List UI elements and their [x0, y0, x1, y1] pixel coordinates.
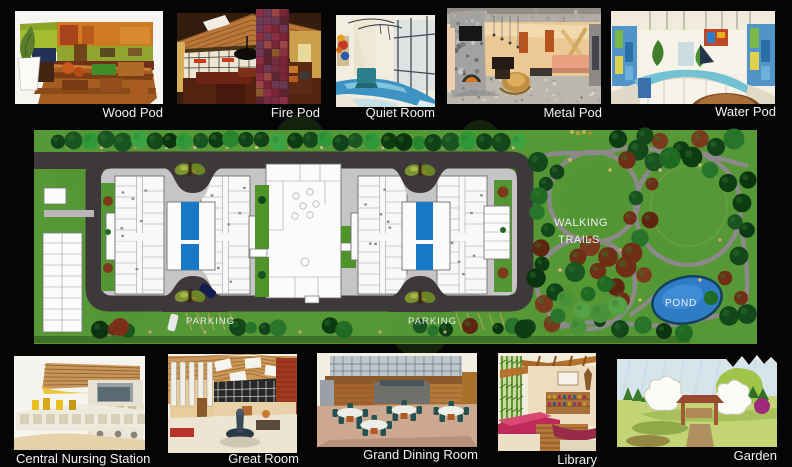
svg-text:TRAILS: TRAILS: [558, 234, 600, 246]
svg-text:Garden: Garden: [734, 448, 777, 463]
svg-text:Grand Dining Room: Grand Dining Room: [363, 447, 478, 462]
svg-text:Quiet Room: Quiet Room: [366, 105, 435, 120]
svg-text:PARKING: PARKING: [408, 316, 457, 327]
svg-text:Metal Pod: Metal Pod: [543, 105, 602, 120]
svg-text:Library: Library: [557, 452, 597, 467]
svg-text:Wood Pod: Wood Pod: [103, 105, 163, 120]
svg-text:PARKING: PARKING: [186, 316, 235, 327]
svg-text:WALKING: WALKING: [554, 217, 608, 229]
svg-text:Fire Pod: Fire Pod: [271, 105, 320, 120]
svg-text:Great Room: Great Room: [228, 451, 299, 466]
svg-text:Water Pod: Water Pod: [715, 104, 776, 119]
svg-text:POND: POND: [665, 298, 697, 309]
svg-text:Central Nursing Station: Central Nursing Station: [16, 451, 150, 466]
